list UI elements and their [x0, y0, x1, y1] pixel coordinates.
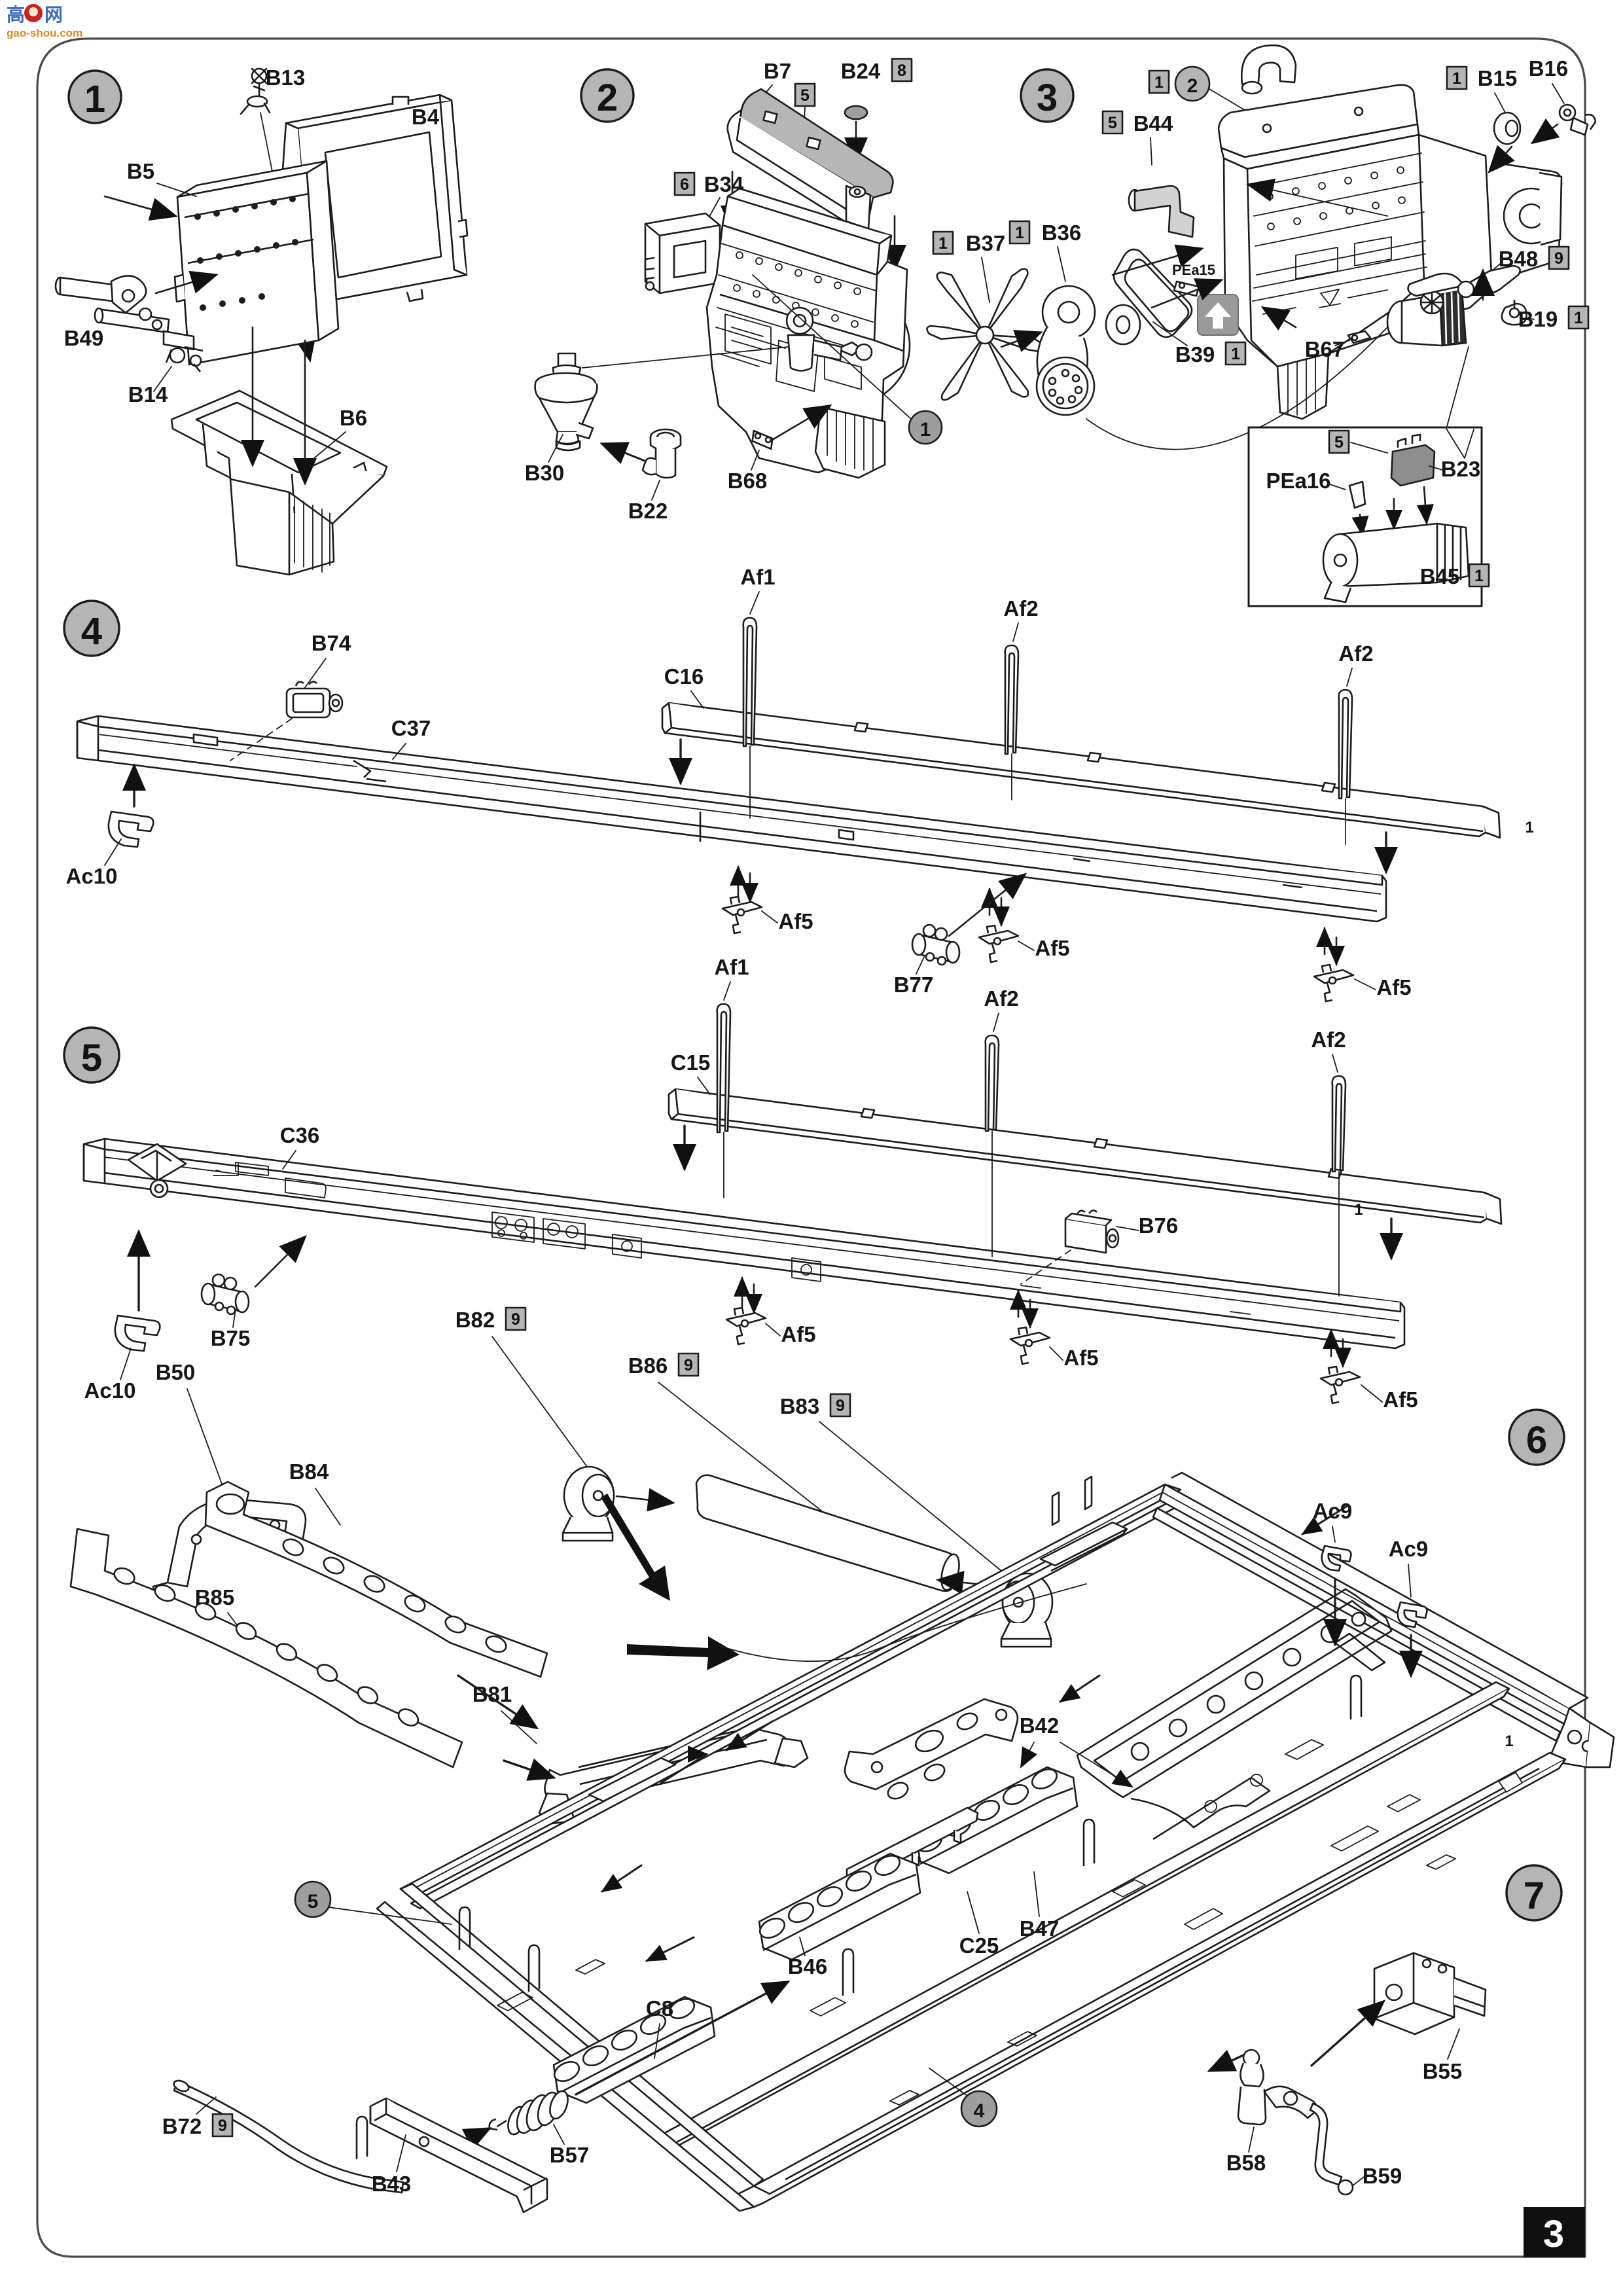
svg-text:Af2: Af2 [984, 986, 1018, 1011]
svg-text:Af5: Af5 [1035, 936, 1069, 960]
svg-text:Ac9: Ac9 [1389, 1537, 1429, 1561]
svg-text:1: 1 [1231, 345, 1240, 363]
svg-text:1: 1 [84, 78, 105, 120]
svg-text:1: 1 [920, 419, 931, 440]
svg-text:B72: B72 [162, 2114, 202, 2138]
svg-text:B14: B14 [128, 382, 168, 406]
svg-text:9: 9 [836, 1397, 845, 1415]
svg-text:5: 5 [81, 1037, 102, 1079]
svg-text:Af5: Af5 [1063, 1346, 1098, 1370]
svg-text:B67: B67 [1305, 337, 1345, 361]
svg-text:8: 8 [897, 62, 906, 80]
svg-text:Af2: Af2 [1311, 1028, 1346, 1052]
svg-text:C25: C25 [959, 1933, 999, 1958]
svg-text:B76: B76 [1139, 1213, 1179, 1238]
svg-text:B45: B45 [1420, 564, 1460, 588]
svg-text:1: 1 [1015, 224, 1024, 242]
svg-text:B42: B42 [1020, 1713, 1060, 1738]
svg-text:Ac9: Ac9 [1313, 1499, 1353, 1523]
svg-text:9: 9 [218, 2117, 227, 2135]
svg-text:B5: B5 [127, 159, 154, 183]
svg-text:B59: B59 [1363, 2164, 1402, 2188]
svg-text:C15: C15 [671, 1050, 711, 1075]
svg-text:4: 4 [974, 2100, 985, 2122]
svg-text:B82: B82 [455, 1308, 495, 1332]
svg-text:C36: C36 [280, 1123, 320, 1147]
svg-text:6: 6 [680, 175, 689, 194]
svg-text:B37: B37 [966, 231, 1006, 255]
svg-text:B13: B13 [266, 65, 306, 90]
svg-text:B30: B30 [525, 461, 565, 485]
svg-text:B49: B49 [64, 326, 104, 350]
svg-text:5: 5 [800, 86, 810, 105]
svg-text:B75: B75 [211, 1326, 251, 1350]
svg-text:B36: B36 [1042, 221, 1082, 245]
svg-text:B43: B43 [372, 2172, 412, 2196]
svg-text:Af2: Af2 [1338, 641, 1373, 666]
svg-text:1: 1 [1505, 1732, 1513, 1750]
svg-text:PEa15: PEa15 [1172, 262, 1215, 278]
svg-text:7: 7 [1524, 1874, 1544, 1917]
svg-text:2: 2 [1187, 75, 1198, 97]
svg-text:C37: C37 [391, 716, 431, 740]
svg-text:B57: B57 [550, 2143, 590, 2167]
svg-text:6: 6 [1526, 1419, 1547, 1462]
svg-text:B86: B86 [628, 1354, 668, 1378]
svg-text:B22: B22 [628, 499, 668, 523]
svg-text:Af5: Af5 [778, 909, 813, 933]
svg-text:B84: B84 [289, 1460, 329, 1484]
svg-text:2: 2 [597, 77, 618, 119]
svg-text:B74: B74 [312, 631, 351, 655]
svg-text:B24: B24 [841, 59, 881, 83]
svg-text:B50: B50 [156, 1360, 196, 1384]
svg-text:Af5: Af5 [1376, 975, 1411, 999]
svg-text:B39: B39 [1175, 342, 1215, 367]
svg-text:B6: B6 [340, 406, 367, 430]
svg-text:1: 1 [1474, 567, 1484, 585]
svg-text:C8: C8 [646, 1996, 673, 2020]
svg-text:B19: B19 [1518, 307, 1558, 331]
svg-text:Af1: Af1 [740, 565, 775, 589]
svg-text:Af2: Af2 [1003, 596, 1038, 620]
svg-text:B15: B15 [1478, 66, 1518, 90]
svg-text:4: 4 [81, 610, 102, 653]
svg-text:B58: B58 [1226, 2151, 1266, 2175]
svg-text:9: 9 [684, 1356, 693, 1374]
svg-text:5: 5 [308, 1891, 319, 1912]
svg-text:1: 1 [1525, 819, 1533, 836]
svg-text:Af5: Af5 [1383, 1388, 1418, 1412]
svg-text:1: 1 [1452, 69, 1461, 88]
svg-text:Af1: Af1 [714, 955, 749, 979]
svg-text:3: 3 [1543, 2213, 1564, 2255]
svg-text:Ac10: Ac10 [84, 1378, 136, 1403]
svg-text:B4: B4 [412, 105, 440, 129]
svg-text:Ac10: Ac10 [66, 864, 118, 888]
svg-text:B55: B55 [1423, 2059, 1463, 2083]
svg-text:1: 1 [1574, 309, 1583, 327]
svg-text:B7: B7 [764, 59, 791, 83]
svg-text:B81: B81 [473, 1682, 512, 1706]
svg-text:1: 1 [1354, 1201, 1363, 1219]
svg-text:C16: C16 [664, 664, 704, 689]
svg-text:B68: B68 [728, 469, 768, 493]
svg-text:B83: B83 [780, 1394, 820, 1418]
svg-text:9: 9 [1554, 249, 1563, 268]
svg-text:B44: B44 [1133, 111, 1173, 135]
svg-text:B23: B23 [1441, 457, 1481, 481]
svg-text:1: 1 [1154, 73, 1164, 92]
svg-text:B47: B47 [1020, 1916, 1060, 1941]
svg-text:3: 3 [1037, 77, 1058, 119]
svg-text:gao-shou.com: gao-shou.com [7, 27, 82, 39]
svg-text:Af5: Af5 [781, 1322, 815, 1346]
svg-text:B16: B16 [1529, 56, 1569, 81]
svg-text:PEa16: PEa16 [1266, 469, 1330, 493]
svg-text:5: 5 [1108, 114, 1117, 132]
svg-text:高: 高 [7, 5, 25, 25]
svg-text:网: 网 [45, 5, 63, 25]
svg-text:5: 5 [1334, 433, 1344, 452]
svg-text:1: 1 [938, 234, 948, 253]
svg-text:B77: B77 [894, 973, 934, 997]
svg-text:B46: B46 [788, 1954, 828, 1979]
svg-text:9: 9 [511, 1310, 520, 1329]
